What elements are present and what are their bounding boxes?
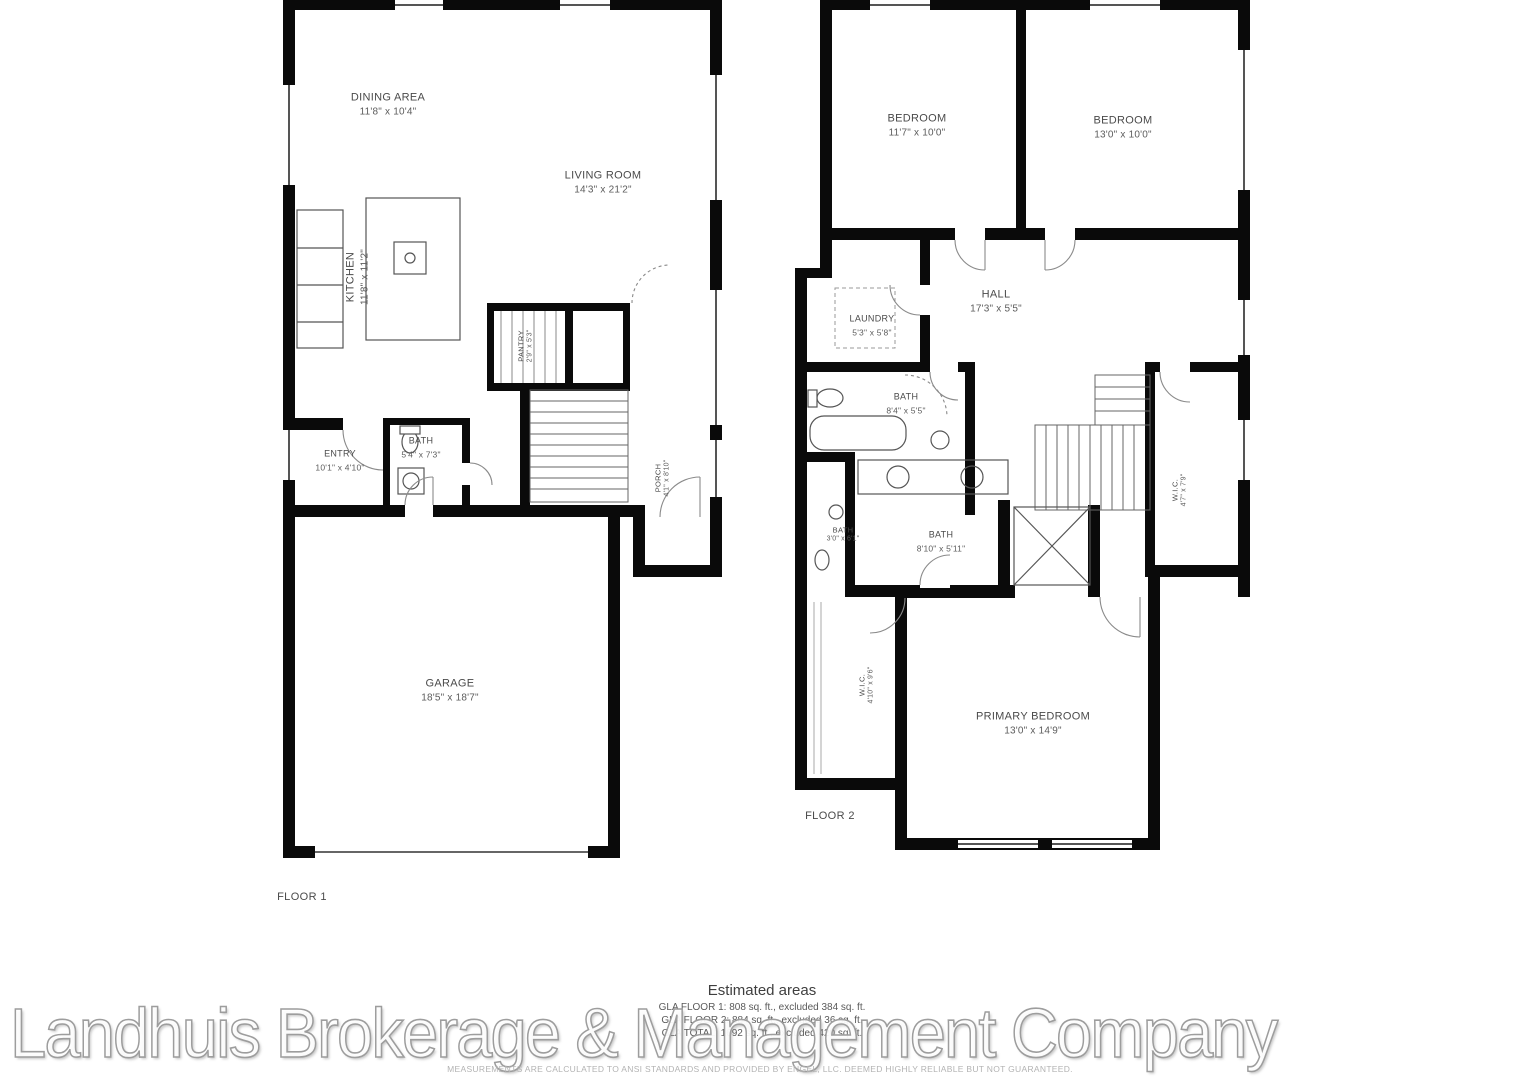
room-label-dining: DINING AREA 11'8" x 10'4" <box>351 92 425 119</box>
floor2-tag: FLOOR 2 <box>805 810 855 822</box>
room-dims: 13'0" x 10'0" <box>1094 129 1153 142</box>
room-dims: 18'5" x 18'7" <box>421 692 478 705</box>
room-label-laundry: LAUNDRY 5'3" x 5'8" <box>850 313 895 340</box>
linen-closet-x <box>1014 507 1090 585</box>
kitchen-fixtures <box>297 198 460 348</box>
room-name: BEDROOM <box>888 113 947 125</box>
floor1-walls <box>283 0 722 858</box>
room-name: BATH <box>409 436 434 446</box>
floorplan-page: DINING AREA 11'8" x 10'4" LIVING ROOM 14… <box>0 0 1521 1080</box>
floor1-windows <box>283 0 722 855</box>
room-name: PORCH <box>654 464 663 493</box>
room-name: W.I.C. <box>858 674 867 696</box>
room-name: DINING AREA <box>351 92 425 104</box>
room-name: HALL <box>982 289 1011 301</box>
room-label-garage: GARAGE 18'5" x 18'7" <box>421 678 478 705</box>
room-name: LIVING ROOM <box>565 170 642 182</box>
room-label-wic-left: W.I.C. 4'10" x 9'6" <box>859 667 876 704</box>
room-dims: 5'4" x 7'3" <box>401 449 440 462</box>
room-dims: 5'3" x 5'8" <box>850 327 895 340</box>
room-dims: 17'3" x 5'5" <box>970 303 1022 316</box>
room-label-bedroom-1: BEDROOM 11'7" x 10'0" <box>888 113 947 140</box>
room-label-living: LIVING ROOM 14'3" x 21'2" <box>565 170 642 197</box>
room-name: PANTRY <box>517 330 526 362</box>
floor1-tag: FLOOR 1 <box>277 891 327 903</box>
room-name: GARAGE <box>426 678 475 690</box>
room-dims: 13'0" x 14'9" <box>976 725 1090 738</box>
room-dims: 8'10" x 5'11" <box>917 543 966 556</box>
room-label-bath-lower: BATH 8'10" x 5'11" <box>917 529 966 556</box>
floor1-stairs <box>530 390 628 502</box>
room-label-bath-floor1: BATH 5'4" x 7'3" <box>401 435 440 462</box>
room-dims: 11'7" x 10'0" <box>888 127 947 140</box>
room-dims: 8'4" x 5'5" <box>886 405 925 418</box>
room-label-pantry: PANTRY 2'9" x 5'3" <box>518 330 535 363</box>
room-name: W.I.C. <box>1171 479 1180 501</box>
room-label-porch: PORCH 4'1" x 8'10" <box>655 460 672 497</box>
room-dims: 10'1" x 4'10" <box>315 462 364 475</box>
room-name: BATH <box>833 526 854 535</box>
room-dims: 3'0" x 6'1" <box>827 536 860 544</box>
room-label-bath-small: BATH 3'0" x 6'1" <box>827 527 860 544</box>
room-label-wic-right: W.I.C. 4'7" x 7'9" <box>1172 474 1189 507</box>
disclaimer-text: MEASUREMENTS ARE CALCULATED TO ANSI STAN… <box>447 1064 1073 1074</box>
room-name: ENTRY <box>324 449 356 459</box>
room-dims: 11'8" x 11'2" <box>359 249 372 305</box>
room-dims: 11'8" x 10'4" <box>351 106 425 119</box>
room-label-entry: ENTRY 10'1" x 4'10" <box>315 448 364 475</box>
room-label-bedroom-2: BEDROOM 13'0" x 10'0" <box>1094 115 1153 142</box>
floor2-door-arcs <box>870 240 1190 637</box>
floor2-stairs <box>1035 375 1150 510</box>
room-name: LAUNDRY <box>850 314 895 324</box>
room-name: BEDROOM <box>1094 115 1153 127</box>
room-dims: 4'10" x 9'6" <box>868 667 876 704</box>
room-name: BATH <box>894 392 919 402</box>
wic-shelves <box>814 602 821 774</box>
room-name: KITCHEN <box>345 252 357 302</box>
room-label-hall: HALL 17'3" x 5'5" <box>970 289 1022 316</box>
room-dims: 2'9" x 5'3" <box>527 330 535 363</box>
room-name: BATH <box>929 530 954 540</box>
room-dims: 4'1" x 8'10" <box>664 460 672 497</box>
room-label-primary-bedroom: PRIMARY BEDROOM 13'0" x 14'9" <box>976 711 1090 738</box>
room-label-kitchen: KITCHEN 11'8" x 11'2" <box>345 249 372 305</box>
room-name: PRIMARY BEDROOM <box>976 711 1090 723</box>
room-dims: 14'3" x 21'2" <box>565 184 642 197</box>
room-dims: 4'7" x 7'9" <box>1181 474 1189 507</box>
floorplan-drawing <box>0 0 1521 1080</box>
room-label-bath-upper: BATH 8'4" x 5'5" <box>886 391 925 418</box>
watermark: Landhuis Brokerage & Management Company <box>10 993 1276 1073</box>
